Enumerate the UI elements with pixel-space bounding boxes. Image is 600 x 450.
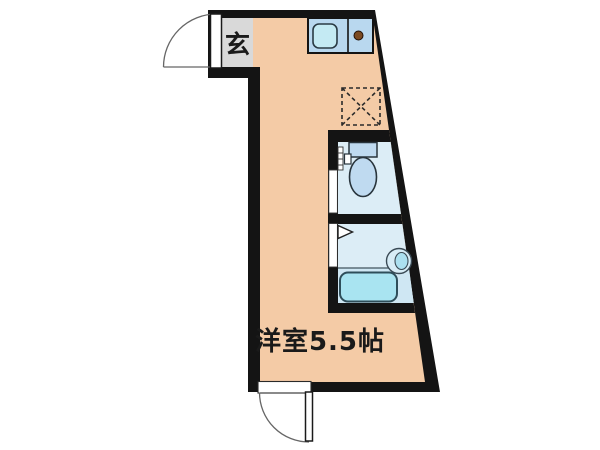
bathroom-door-leaf xyxy=(329,224,338,268)
bathtub-icon xyxy=(340,273,397,302)
kitchen-counter xyxy=(308,18,373,53)
bottom-door-leaf xyxy=(306,392,313,441)
bath-basin-icon xyxy=(387,249,412,274)
bottom-door-opening xyxy=(258,382,311,394)
toilet-door-leaf xyxy=(329,170,338,213)
floor-plan-page: 玄 洋室5.5帖 xyxy=(0,0,600,450)
entrance-door-leaf xyxy=(211,14,222,68)
toilet-bowl xyxy=(350,158,377,197)
stove-burner-icon xyxy=(354,31,363,40)
toilet-flush-lever xyxy=(345,154,352,164)
entrance-label: 玄 xyxy=(225,30,250,59)
floor-plan-image: 玄 洋室5.5帖 xyxy=(0,0,600,450)
main-room-label: 洋室5.5帖 xyxy=(255,326,385,357)
kitchen-sink-icon xyxy=(313,24,337,48)
toilet-shelf-icon xyxy=(338,147,343,170)
toilet-tank xyxy=(349,143,377,158)
